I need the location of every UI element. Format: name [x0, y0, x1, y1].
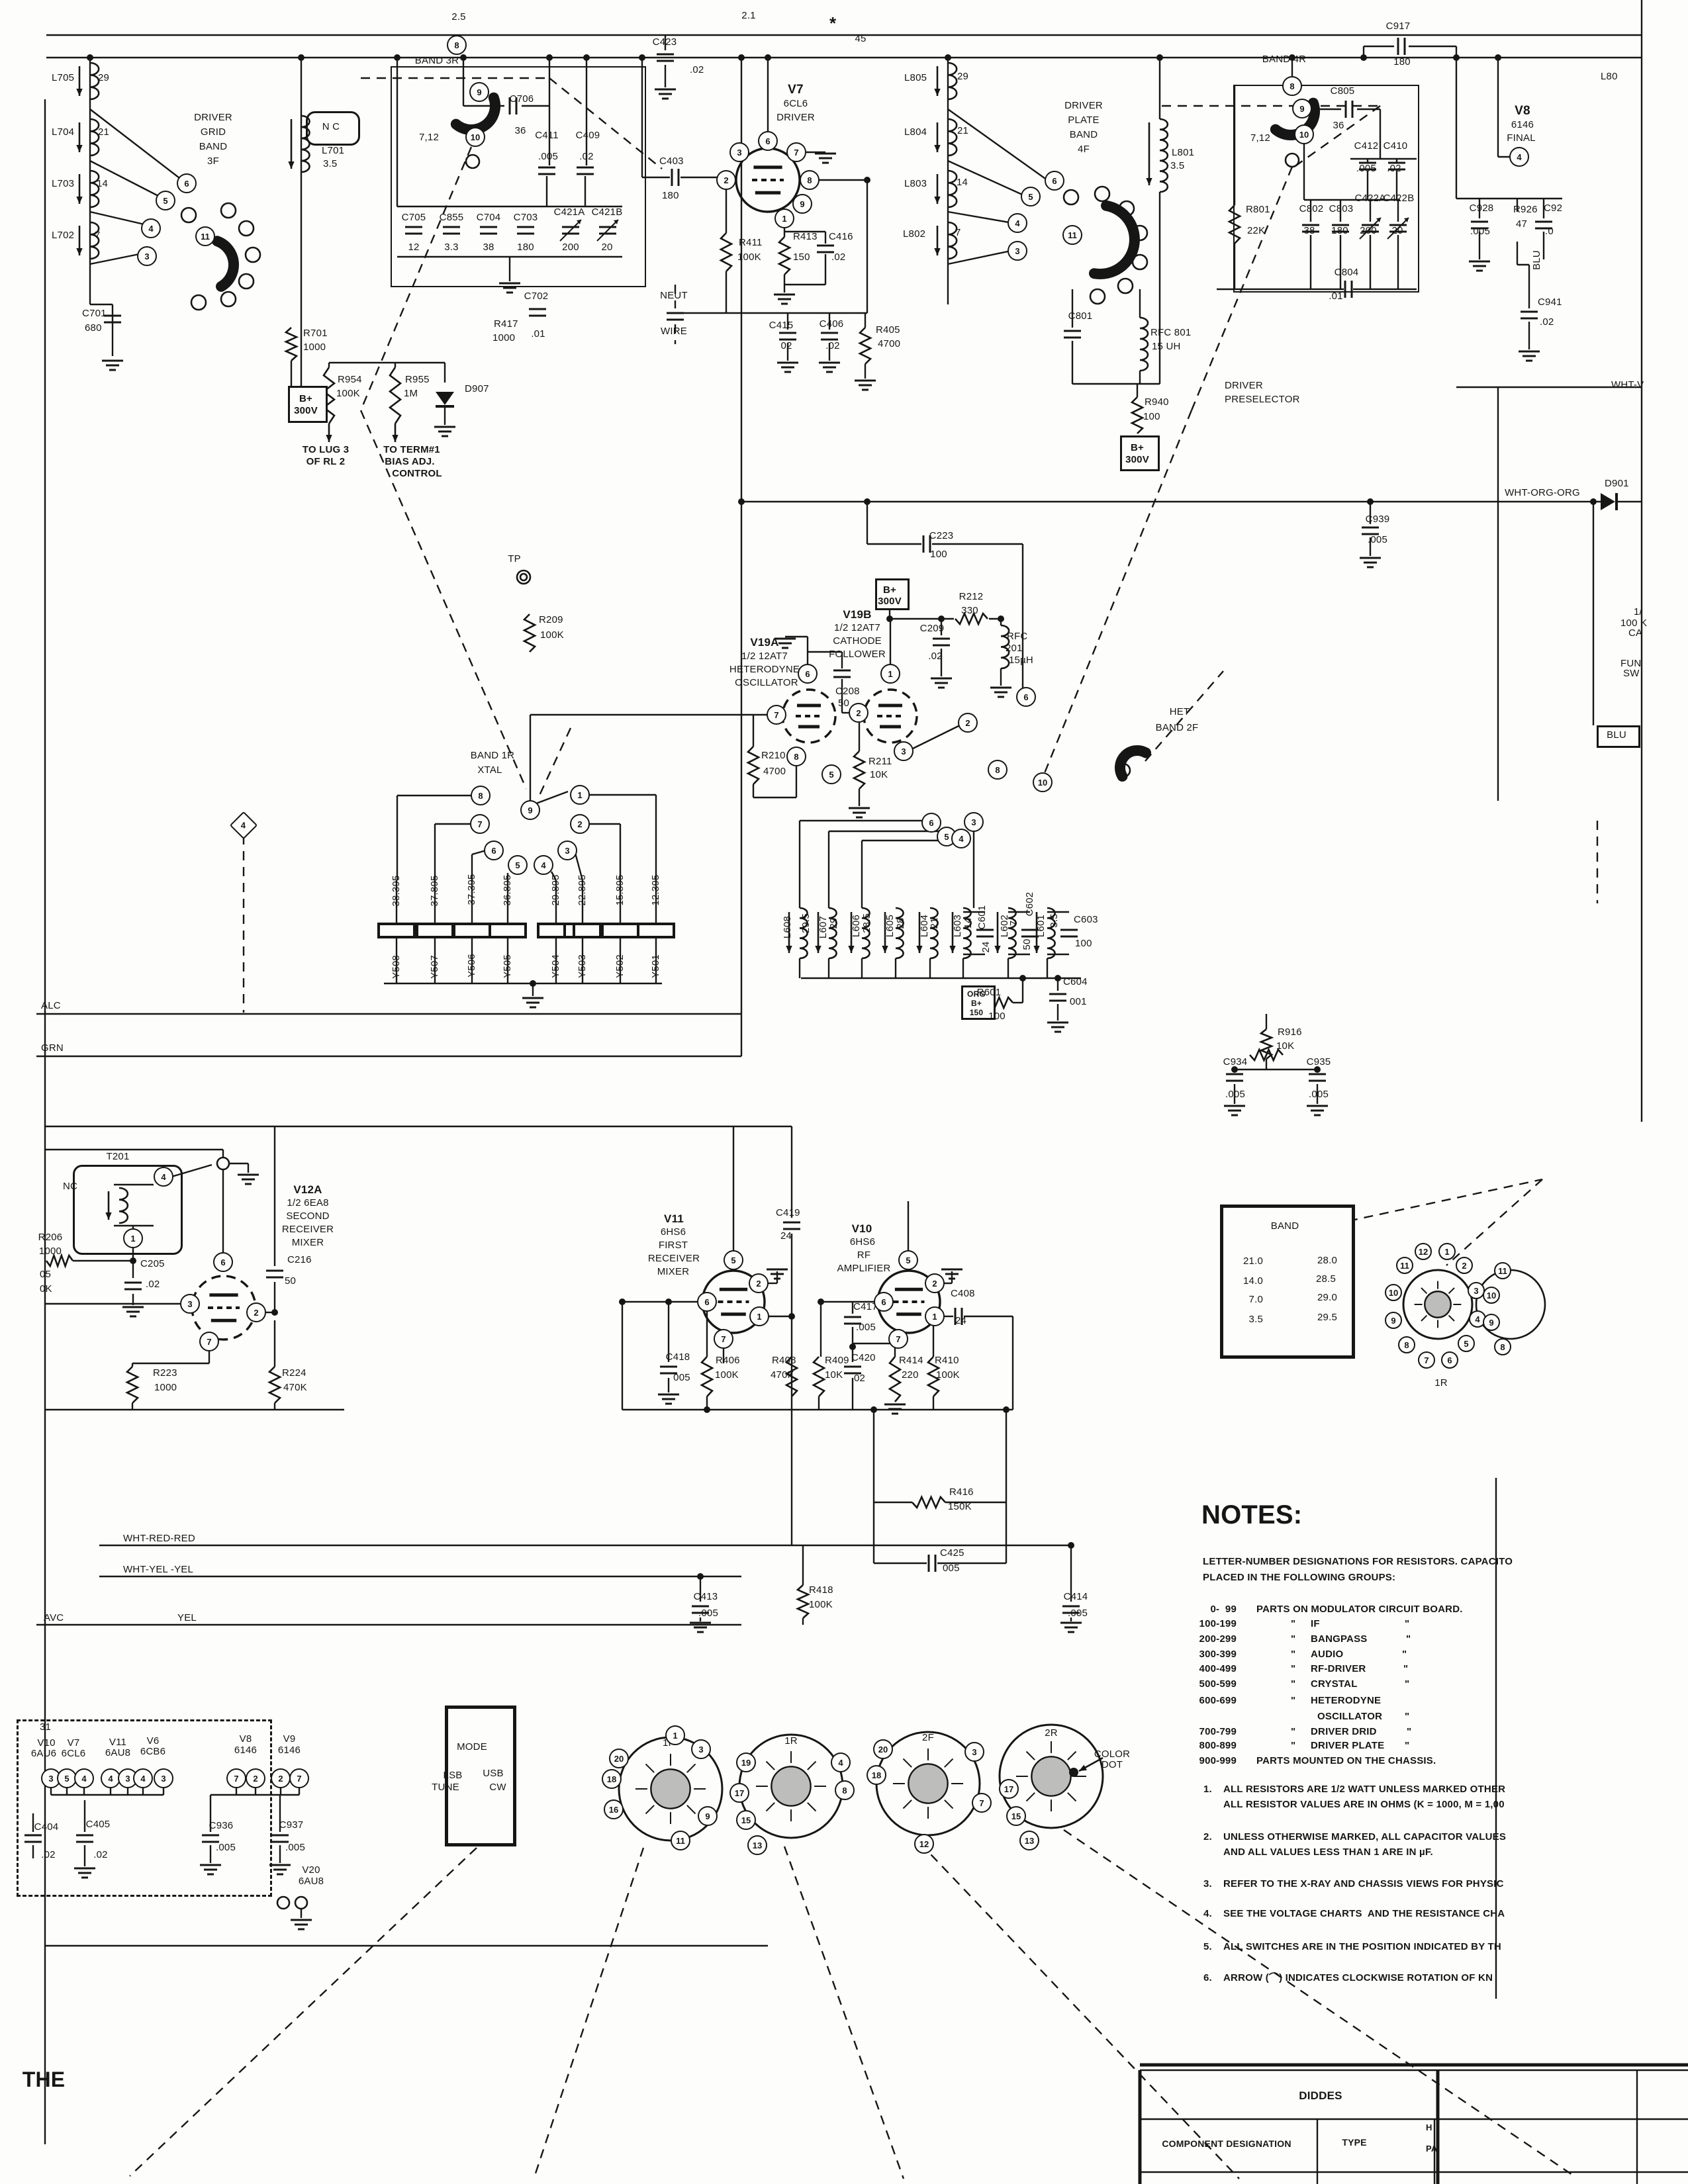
pin-10: 10 — [1294, 124, 1314, 144]
ref-R209: R209 — [539, 615, 563, 625]
ref-L607: L607 — [818, 916, 829, 938]
title-driver-grid-4: 3F — [207, 156, 219, 167]
pin-18: 18 — [602, 1769, 622, 1789]
ref-L802: L802 — [903, 229, 925, 240]
pin-7: 7 — [470, 814, 490, 834]
lbl-712-right: 7,12 — [1250, 133, 1270, 144]
pin-6: 6 — [177, 173, 197, 193]
val-C941: .02 — [1540, 317, 1554, 328]
val-L704: 21 — [98, 127, 109, 138]
val-Y505: 36.895 — [502, 874, 513, 905]
val-C415: 02 — [780, 341, 792, 351]
val-C205: .02 — [146, 1279, 160, 1290]
val-C802: 38 — [1303, 226, 1315, 236]
title-v19b: V19B — [843, 609, 871, 621]
pin-8: 8 — [835, 1780, 855, 1800]
lbl-wht-v: WHT-V — [1611, 380, 1644, 390]
note-1-line1: ALL RESISTORS ARE 1/2 WATT UNLESS MARKED… — [1223, 1784, 1505, 1795]
pin-4: 4 — [1008, 213, 1027, 233]
title-band1r-xtal-2: XTAL — [477, 765, 502, 776]
ref-C804: C804 — [1335, 267, 1359, 278]
pin-1: 1 — [1438, 1243, 1456, 1260]
pin-2: 2 — [570, 814, 590, 834]
pin-6: 6 — [484, 841, 504, 860]
notes-intro-2: PLACED IN THE FOLLOWING GROUPS: — [1203, 1572, 1395, 1583]
lbl-avc: AVC — [44, 1613, 64, 1623]
float-star: * — [829, 15, 836, 32]
ref-L705: L705 — [52, 73, 74, 83]
val-L802: 7 — [955, 228, 961, 238]
ref-R223: R223 — [153, 1368, 177, 1379]
lbl-wafer-1r-dial: 1R — [1434, 1378, 1448, 1388]
note-2-line2: AND ALL VALUES LESS THAN 1 ARE IN µF. — [1223, 1847, 1433, 1858]
lbl-nc-top: N C — [322, 122, 340, 132]
title-v8h-type: 6146 — [234, 1745, 257, 1756]
grp-7-q2: " — [1407, 1727, 1411, 1737]
lbl-blu-wire: BLU — [1532, 250, 1542, 270]
ref-C405: C405 — [86, 1819, 111, 1830]
pin-4: 4 — [74, 1768, 94, 1788]
ref-RFC801: RFC 801 — [1150, 328, 1191, 338]
title-driver-grid-1: DRIVER — [194, 113, 232, 123]
ref-C406: C406 — [820, 319, 844, 330]
pin-10: 10 — [465, 127, 485, 147]
tick-3-5: 3.5 — [1249, 1314, 1263, 1325]
pin-1: 1 — [880, 664, 900, 684]
pin-19: 19 — [736, 1752, 756, 1772]
ref-C704: C704 — [477, 212, 501, 223]
pin-3: 3 — [894, 741, 914, 761]
title-v19a-role2: OSCILLATOR — [735, 678, 798, 688]
grp-6-text2: OSCILLATOR — [1317, 1711, 1382, 1722]
ref-C422A: C422A — [1355, 193, 1386, 204]
title-driver-plate-3: BAND — [1070, 130, 1098, 140]
pin-2: 2 — [271, 1768, 291, 1788]
pin-10: 10 — [1483, 1287, 1500, 1304]
val-C412: .005 — [1356, 163, 1376, 174]
val-R224: 470K — [283, 1383, 307, 1393]
pin-7: 7 — [199, 1332, 219, 1351]
val-Y504: 29.895 — [551, 874, 561, 905]
ref-C411: C411 — [535, 130, 559, 141]
note-5-num: 5. — [1203, 1942, 1212, 1952]
pin-3: 3 — [180, 1294, 200, 1314]
val-C418: 005 — [673, 1373, 690, 1383]
ref-L803: L803 — [904, 179, 927, 189]
ref-T201: T201 — [107, 1152, 130, 1162]
title-driver-grid-2: GRID — [201, 127, 226, 138]
ref-R408: R408 — [772, 1355, 796, 1366]
title-v10-type: 6HS6 — [850, 1237, 875, 1248]
val-C939: .005 — [1368, 535, 1387, 545]
val-C420: 02 — [854, 1373, 865, 1384]
val-C413: .005 — [698, 1608, 718, 1619]
ref-L605: L605 — [885, 915, 896, 937]
val-R405: 4700 — [878, 339, 900, 349]
ref-C413: C413 — [694, 1592, 718, 1602]
grp-0-text: PARTS ON MODULATOR CIRCUIT BOARD. — [1256, 1604, 1463, 1615]
ref-R701: R701 — [303, 328, 328, 339]
val-L606: 28.5 — [862, 913, 872, 933]
val-C223: 100 — [930, 549, 947, 560]
lbl-usb: USB — [483, 1768, 503, 1779]
grp-7-q1: " — [1291, 1727, 1295, 1737]
title-band1r-xtal-1: BAND 1R — [471, 751, 514, 761]
grp-9-range: 900-999 — [1199, 1756, 1237, 1766]
ref-C934: C934 — [1223, 1057, 1248, 1068]
pin-17: 17 — [999, 1779, 1019, 1799]
note-3-line1: REFER TO THE X-RAY AND CHASSIS VIEWS FOR… — [1223, 1879, 1504, 1889]
ref-RFC201-1: RFC — [1007, 631, 1027, 642]
pin-1: 1 — [123, 1228, 143, 1248]
lbl-org-3: 150 — [970, 1009, 984, 1017]
ref-L804: L804 — [904, 127, 927, 138]
tick-29-5: 29.5 — [1317, 1312, 1337, 1323]
box-bplus-1 — [288, 386, 328, 423]
title-v10h-type: 6AU6 — [31, 1749, 56, 1759]
title-v7h-type: 6CL6 — [62, 1749, 86, 1759]
pin-2: 2 — [246, 1302, 266, 1322]
pin-7: 7 — [972, 1793, 992, 1813]
val-L805: 29 — [957, 71, 968, 82]
val-C406: .02 — [825, 341, 839, 351]
table-col-3a: H — [1426, 2123, 1432, 2132]
pin-1: 1 — [570, 785, 590, 805]
ref-Y505: Y505 — [502, 954, 513, 978]
grp-5-q1: " — [1291, 1679, 1295, 1690]
ref-C205: C205 — [140, 1259, 165, 1269]
pin-16: 16 — [604, 1799, 624, 1819]
lbl-org-2: B+ — [971, 999, 982, 1008]
grp-4-range: 400-499 — [1199, 1664, 1237, 1674]
ref-R417: R417 — [494, 319, 518, 330]
ref-R409: R409 — [825, 1355, 849, 1366]
lbl-the: THE — [23, 2069, 66, 2091]
pin-11: 11 — [1396, 1257, 1413, 1274]
val-L702: 7 — [95, 230, 101, 241]
grp-6-text: HETERODYNE — [1311, 1696, 1381, 1706]
val-C404: .02 — [41, 1850, 55, 1860]
pin-3: 3 — [1468, 1282, 1485, 1299]
val-R206: 1000 — [39, 1246, 62, 1257]
val-R916: 10K — [1276, 1041, 1294, 1052]
lbl-wht-red-red: WHT-RED-RED — [123, 1533, 195, 1544]
title-v12a: V12A — [293, 1184, 322, 1196]
lbl-neut: NEUT — [660, 291, 688, 301]
pin-8: 8 — [988, 760, 1008, 780]
ref-Y504: Y504 — [551, 954, 561, 978]
val-C601: 24 — [981, 941, 992, 952]
pin-3: 3 — [691, 1739, 711, 1759]
ref-C421A: C421A — [554, 207, 585, 218]
ref-C936: C936 — [209, 1821, 234, 1831]
note-3-num: 3. — [1203, 1879, 1212, 1889]
ref-R416: R416 — [949, 1487, 974, 1498]
ref-C602: C602 — [1025, 892, 1035, 917]
pin-1: 1 — [665, 1725, 685, 1745]
pin-6: 6 — [213, 1252, 233, 1272]
val-R212: 330 — [961, 606, 978, 616]
pin-9: 9 — [698, 1806, 718, 1826]
val-C410: .02 — [1387, 163, 1401, 174]
pin-10: 10 — [1033, 772, 1053, 792]
title-v19a-type: 1/2 12AT7 — [741, 651, 788, 662]
title-preselector-1: DRIVER — [1225, 381, 1263, 391]
pin-7: 7 — [767, 705, 786, 725]
val-C209: .02 — [928, 651, 942, 662]
pin-18: 18 — [867, 1765, 886, 1785]
val-R926: 47 — [1516, 219, 1527, 230]
pin-5: 5 — [508, 855, 528, 875]
title-v19b-role1: CATHODE — [833, 636, 882, 647]
pin-20: 20 — [873, 1739, 893, 1759]
pin-3: 3 — [964, 1742, 984, 1762]
val-C705: 12 — [408, 242, 419, 253]
pin-8: 8 — [800, 170, 820, 190]
pin-1: 1 — [774, 208, 794, 228]
title-v6h-type: 6CB6 — [140, 1747, 165, 1757]
grp-1-q1: " — [1291, 1619, 1295, 1629]
lbl-clip-3: CA — [1628, 628, 1642, 639]
ref-R211: R211 — [868, 756, 892, 767]
notes-intro-1: LETTER-NUMBER DESIGNATIONS FOR RESISTORS… — [1203, 1557, 1513, 1567]
grp-6-q1: " — [1291, 1696, 1295, 1706]
grp-3-q1: " — [1291, 1649, 1295, 1660]
grp-8-range: 800-899 — [1199, 1741, 1237, 1751]
table-title: DIDDES — [1299, 2090, 1342, 2102]
pin-12: 12 — [1415, 1243, 1432, 1260]
val-R418: 100K — [809, 1600, 833, 1610]
title-het-band-2: BAND 2F — [1156, 723, 1199, 733]
pin-7: 7 — [226, 1768, 246, 1788]
title-v10-role2: AMPLIFIER — [837, 1263, 891, 1274]
title-v11h: V11 — [109, 1737, 126, 1748]
ref-R212: R212 — [959, 592, 984, 602]
pin-7: 7 — [888, 1329, 908, 1349]
grp-7-range: 700-799 — [1199, 1727, 1237, 1737]
pin-15: 15 — [736, 1810, 756, 1830]
lbl-tp: TP — [508, 554, 521, 565]
lbl-bias-2: BIAS ADJ. — [385, 457, 434, 467]
title-v6h: V6 — [147, 1736, 160, 1747]
val-L601: 3.5 — [1049, 913, 1060, 927]
title-v19a: V19A — [750, 637, 778, 649]
val-R701: 1000 — [303, 342, 326, 353]
val-R940: 100 — [1143, 412, 1160, 422]
val-C414: .005 — [1068, 1608, 1088, 1619]
pin-3: 3 — [729, 142, 749, 162]
val-C917: 180 — [1393, 57, 1411, 68]
val-C403: 180 — [662, 191, 679, 201]
grp-5-text: CRYSTAL — [1311, 1679, 1358, 1690]
val-C702: .01 — [531, 329, 545, 340]
val-C937: .005 — [285, 1843, 305, 1853]
title-v12a-role1: SECOND — [286, 1211, 329, 1222]
val-C405: .02 — [93, 1850, 107, 1860]
pin-2: 2 — [925, 1273, 945, 1293]
val-Y503: 22.895 — [577, 874, 588, 905]
float-45: 45 — [855, 34, 866, 44]
ref-C705: C705 — [402, 212, 426, 223]
pin-11: 11 — [195, 226, 215, 246]
ref-C223: C223 — [929, 531, 954, 541]
ref-C702: C702 — [524, 291, 549, 302]
ref-R405: R405 — [876, 325, 900, 336]
lbl-tune: TUNE — [432, 1782, 459, 1793]
val-C419: 24 — [780, 1231, 792, 1242]
grp-2-q2: " — [1406, 1634, 1411, 1645]
ref-C404: C404 — [34, 1822, 59, 1833]
ref-C604: C604 — [1063, 977, 1088, 987]
pin-6: 6 — [1016, 687, 1036, 707]
pin-2: 2 — [716, 170, 736, 190]
lbl-bplus2-2: 300V — [1125, 455, 1149, 465]
ref-C935: C935 — [1307, 1057, 1331, 1068]
lbl-31: 31 — [40, 1722, 51, 1733]
tick-28-0: 28.0 — [1317, 1255, 1337, 1266]
val-RFC801: 15 UH — [1152, 341, 1181, 352]
grp-3-q2: " — [1402, 1649, 1407, 1660]
val-C408: 24 — [955, 1316, 966, 1326]
val-R416: 150K — [948, 1502, 972, 1512]
ref-D907: D907 — [465, 384, 489, 394]
ref-L606: L606 — [851, 915, 862, 937]
grp-3-range: 300-399 — [1199, 1649, 1237, 1660]
pin-8: 8 — [447, 35, 467, 55]
val-R954: 100K — [336, 388, 360, 399]
title-v8-role: FINAL — [1507, 133, 1536, 144]
pin-2: 2 — [958, 713, 978, 733]
val-C805: 36 — [1333, 120, 1344, 131]
grp-2-q1: " — [1291, 1634, 1295, 1645]
ref-C855: C855 — [440, 212, 464, 223]
val-R413: 150 — [793, 252, 810, 263]
val-L804: 21 — [957, 126, 968, 136]
pin-5: 5 — [1021, 187, 1041, 206]
ref-R954: R954 — [338, 375, 362, 385]
val-C704: 38 — [483, 242, 494, 253]
ref-C418: C418 — [666, 1352, 690, 1363]
title-v7-role: DRIVER — [776, 113, 815, 123]
note-4-num: 4. — [1203, 1909, 1212, 1919]
lbl-wire: WIRE — [661, 326, 687, 337]
val-R406: 100K — [715, 1370, 739, 1381]
note-1-num: 1. — [1203, 1784, 1212, 1795]
title-v7-type: 6CL6 — [784, 99, 808, 109]
val-Y506: 37.395 — [467, 874, 477, 905]
lbl-lug3-2: OF RL 2 — [306, 457, 346, 467]
val-R211: 10K — [870, 770, 888, 780]
pin-8: 8 — [1398, 1336, 1415, 1353]
val-C411: .005 — [538, 152, 558, 162]
val-L605: 28 — [896, 917, 906, 929]
grp-8-text: DRIVER PLATE — [1311, 1741, 1384, 1751]
title-v10: V10 — [852, 1223, 872, 1235]
title-v10h: V10 — [37, 1738, 55, 1749]
ref-R224: R224 — [282, 1368, 306, 1379]
ref-Y507: Y507 — [430, 955, 440, 979]
lbl-wafer-2r: 2R — [1045, 1728, 1058, 1739]
ref-Y502: Y502 — [615, 954, 626, 978]
val-R209: 100K — [540, 630, 564, 641]
lbl-clip-7: 0K — [40, 1284, 52, 1295]
val-C934: .005 — [1225, 1089, 1245, 1100]
pin-6: 6 — [1441, 1351, 1458, 1369]
ref-Y508: Y508 — [391, 955, 402, 979]
val-Y501: 12.395 — [651, 874, 661, 905]
lbl-bias-1: TO TERM#1 — [383, 445, 440, 455]
lbl-lug3-1: TO LUG 3 — [303, 445, 350, 455]
title-driver-plate-4: 4F — [1078, 144, 1090, 155]
lbl-712-left: 7,12 — [419, 132, 439, 143]
grp-8-q1: " — [1291, 1741, 1295, 1751]
title-preselector-2: PRESELECTOR — [1225, 394, 1300, 405]
title-v8-type: 6146 — [1511, 120, 1534, 130]
val-L701: 3.5 — [323, 159, 337, 169]
pin-4: 4 — [831, 1752, 851, 1772]
lbl-wafer-1r: 1R — [784, 1736, 798, 1747]
grp-4-q1: " — [1291, 1664, 1295, 1674]
val-C421B: 20 — [601, 242, 612, 253]
grp-4-q2: " — [1403, 1664, 1408, 1674]
lbl-clip-1: 1/ — [1634, 607, 1642, 617]
ref-C937: C937 — [279, 1820, 304, 1831]
tick-29-0: 29.0 — [1317, 1293, 1337, 1303]
val-C706: 36 — [514, 126, 526, 136]
val-Y507: 37.895 — [430, 875, 440, 906]
ref-C208: C208 — [835, 686, 860, 697]
grp-7-text: DRIVER DRID — [1311, 1727, 1377, 1737]
title-band-dial: BAND — [1271, 1221, 1299, 1232]
grp-1-text: IF — [1311, 1619, 1320, 1629]
grp-8-q2: " — [1405, 1741, 1409, 1751]
pin-3: 3 — [964, 812, 984, 832]
ref-C802: C802 — [1299, 204, 1324, 214]
pin-3: 3 — [1008, 241, 1027, 261]
val-C803: 180 — [1331, 226, 1348, 236]
pin-4: 4 — [534, 855, 553, 875]
pin-2: 2 — [1456, 1257, 1473, 1274]
title-driver-grid-3: BAND — [199, 142, 227, 152]
note-6-line1: ARROW (⌒) INDICATES CLOCKWISE ROTATION O… — [1223, 1973, 1493, 1983]
ref-R955: R955 — [405, 375, 430, 385]
pin-7: 7 — [289, 1768, 309, 1788]
val-C216: 50 — [285, 1276, 296, 1287]
ref-Y501: Y501 — [651, 954, 661, 978]
pin-13: 13 — [1019, 1831, 1039, 1850]
val-C935: .005 — [1309, 1089, 1329, 1100]
ref-C412: C412 — [1354, 141, 1379, 152]
ref-D901: D901 — [1605, 478, 1629, 489]
ref-L701: L701 — [322, 146, 344, 156]
val-R955: 1M — [404, 388, 418, 399]
pin-6: 6 — [798, 664, 818, 684]
ref-C941: C941 — [1538, 297, 1562, 308]
title-driver-plate-1: DRIVER — [1064, 101, 1103, 111]
ref-C421B: C421B — [592, 207, 623, 218]
pin-8: 8 — [786, 747, 806, 766]
ref-C803: C803 — [1329, 204, 1354, 214]
ref-C601: C601 — [977, 905, 988, 930]
ref-C419: C419 — [776, 1208, 800, 1218]
pin-12: 12 — [914, 1834, 934, 1854]
ref-C415: C415 — [769, 320, 794, 331]
ref-R926: R926 — [1513, 205, 1538, 215]
pin-2: 2 — [246, 1768, 265, 1788]
lbl-clip-5: SW — [1623, 668, 1640, 679]
pin-9: 9 — [1292, 99, 1312, 118]
ref-L801: L801 — [1172, 148, 1194, 158]
